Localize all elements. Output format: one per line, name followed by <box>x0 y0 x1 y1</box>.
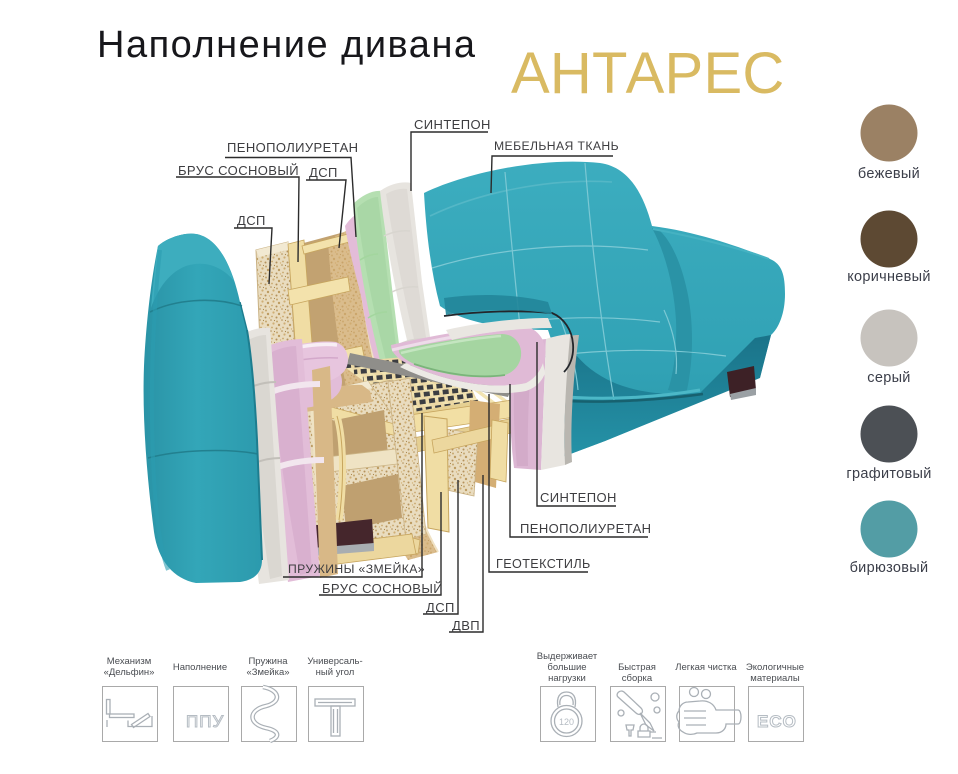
svg-text:ECO: ECO <box>757 712 797 731</box>
svg-text:ППУ: ППУ <box>186 712 224 731</box>
svg-text:120: 120 <box>559 717 574 727</box>
